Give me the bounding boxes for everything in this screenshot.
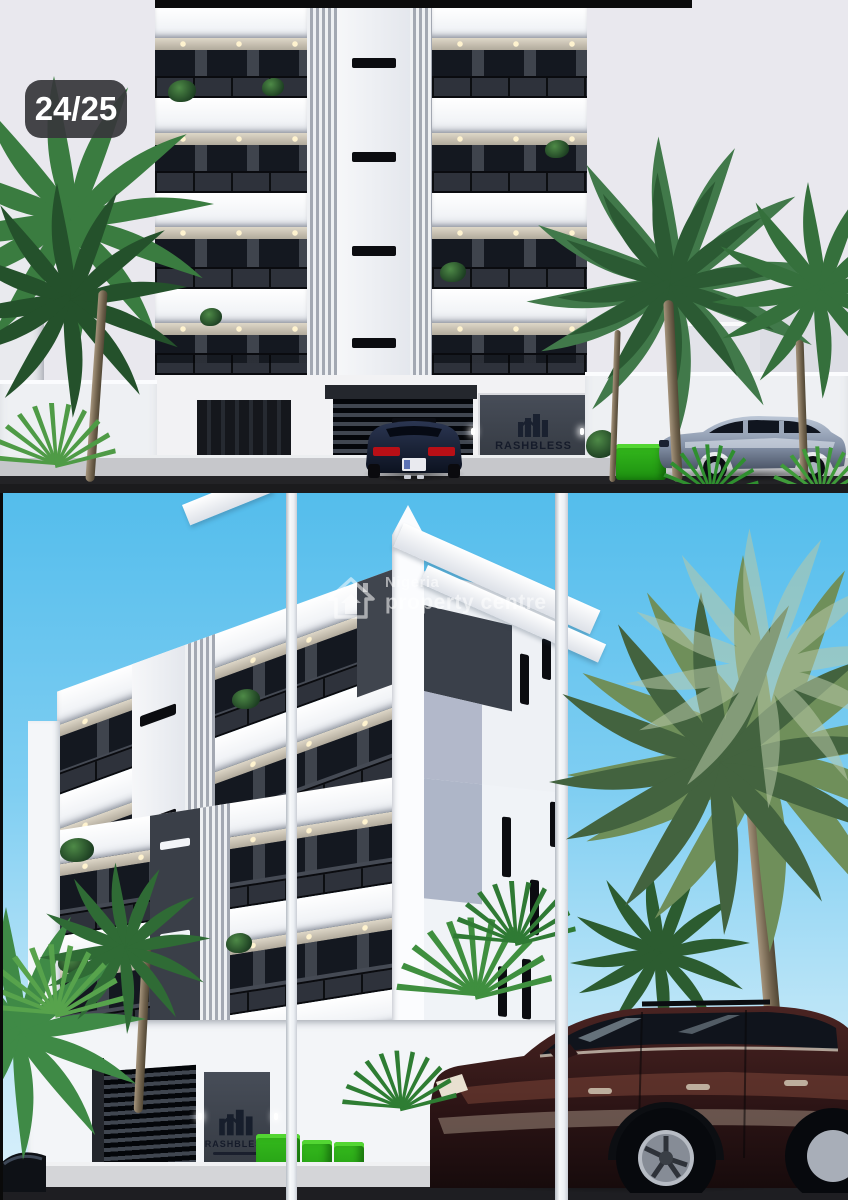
gallery-photo-front-view[interactable]: RASHBLESS — [0, 0, 848, 484]
slit-window — [352, 246, 396, 256]
fan-plant — [0, 380, 130, 484]
signage-subline — [213, 1152, 261, 1155]
balcony-plant — [440, 262, 466, 282]
image-counter-label: 24/25 — [35, 90, 118, 128]
photo-divider — [0, 484, 848, 493]
white-pier — [337, 8, 410, 375]
floor-slab — [155, 8, 307, 38]
floor-windows — [432, 50, 587, 78]
watermark-line1: Nigeria — [385, 574, 547, 591]
photo-edge-strip — [0, 493, 3, 1200]
roof-parapet-fin — [182, 493, 274, 525]
cycad-plant — [760, 432, 848, 484]
floor-ceiling-lights — [155, 38, 307, 50]
roof-parapet — [155, 0, 692, 8]
watermark-text: Nigeria property centre — [385, 574, 547, 615]
slit-window — [520, 653, 529, 705]
wall-light — [471, 428, 475, 435]
slit-window-light — [160, 838, 190, 851]
floor-ceiling-lights — [432, 38, 587, 50]
watermark: Nigeria property centre — [326, 574, 547, 620]
louver-panel — [307, 8, 337, 375]
slit-window — [352, 152, 396, 162]
image-counter-badge: 24/25 — [25, 80, 127, 138]
cycad-plant — [650, 430, 770, 484]
cycad-plant — [330, 1033, 470, 1128]
sports-car — [362, 416, 466, 482]
house-icon — [326, 574, 376, 620]
watermark-line2: property centre — [385, 591, 547, 615]
wall-light — [274, 1113, 278, 1120]
cycad-plant — [0, 923, 140, 1038]
slit-window — [140, 703, 176, 727]
floor-band — [432, 38, 587, 98]
building-logo-icon — [217, 1108, 257, 1136]
white-pole — [286, 493, 297, 1200]
balcony-plant — [262, 78, 284, 96]
palm-tree — [700, 170, 848, 410]
balcony-plant — [232, 689, 260, 709]
gate-canopy — [325, 385, 477, 399]
balcony-railing — [432, 76, 587, 98]
gallery-viewer: RASHBLESS — [0, 0, 848, 1200]
palm-tree — [610, 513, 848, 823]
balcony-plant — [226, 933, 252, 953]
wall-light — [198, 1113, 202, 1120]
gallery-photo-corner-view[interactable]: RASHBLESS — [0, 493, 848, 1200]
floor-slab — [432, 8, 587, 38]
slit-window — [352, 58, 396, 68]
slit-window — [352, 338, 396, 348]
louver-panel — [410, 8, 432, 375]
